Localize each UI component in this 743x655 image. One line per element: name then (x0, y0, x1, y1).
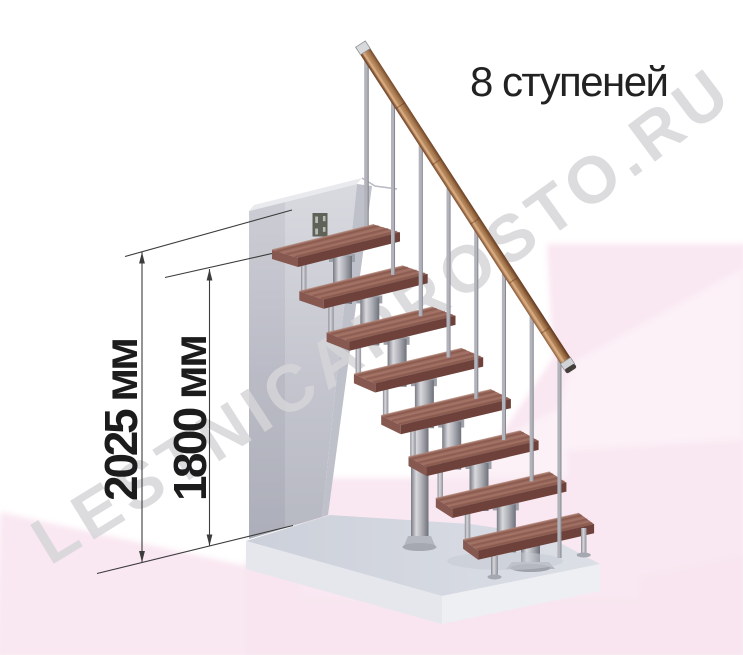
svg-text:8 ступеней: 8 ступеней (470, 58, 669, 105)
svg-text:2025 мм: 2025 мм (95, 337, 147, 501)
svg-text:1800 мм: 1800 мм (164, 334, 216, 501)
